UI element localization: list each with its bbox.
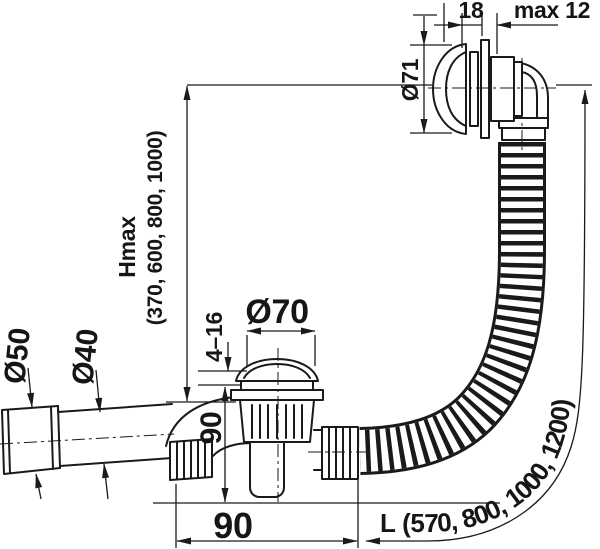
label-diameter-71: Ø71 bbox=[397, 58, 423, 101]
flange-upper bbox=[241, 381, 313, 390]
overflow-washer bbox=[481, 40, 489, 138]
d50-arrow-bottom bbox=[36, 474, 41, 499]
overflow-head bbox=[433, 40, 548, 140]
label-offset-90: 90 bbox=[213, 505, 252, 546]
label-hmax: Hmax bbox=[114, 216, 140, 278]
label-hmax-values: (370, 600, 800, 1000) bbox=[144, 131, 167, 326]
label-diameter-50: Ø50 bbox=[0, 327, 37, 386]
overflow-elbow-inner bbox=[522, 72, 537, 118]
overflow-cap-lens bbox=[433, 44, 466, 134]
dim-waste-height: 90 bbox=[195, 387, 228, 502]
label-wall-max-12: max 12 bbox=[514, 0, 590, 23]
overflow-body bbox=[491, 57, 514, 121]
technical-drawing-page: 18 max 12 Ø71 Hmax (370, 600, 800, 1000)… bbox=[0, 0, 600, 549]
strainer-slots bbox=[252, 405, 302, 438]
hose-drain-nut bbox=[322, 427, 358, 479]
technical-drawing-canvas: 18 max 12 Ø71 Hmax (370, 600, 800, 1000)… bbox=[0, 0, 600, 549]
outlet-tube bbox=[58, 404, 172, 468]
d40-arrow-bottom bbox=[104, 464, 108, 499]
overflow-plate bbox=[470, 52, 478, 126]
dim-plug-diameter: Ø70 bbox=[245, 293, 315, 366]
waste-drain-body bbox=[231, 359, 323, 497]
outlet-stub bbox=[314, 430, 322, 470]
label-height-90: 90 bbox=[195, 412, 228, 445]
trap-cup bbox=[250, 442, 284, 497]
corrugated-hose bbox=[322, 142, 522, 479]
label-grip-18: 18 bbox=[459, 0, 484, 23]
label-clamp-range: 4–16 bbox=[201, 312, 227, 362]
label-diameter-40: Ø40 bbox=[66, 328, 105, 387]
label-diameter-70: Ø70 bbox=[245, 293, 308, 331]
hose-top-connector-band bbox=[502, 128, 545, 140]
dim-height-hmax: Hmax (370, 600, 800, 1000) bbox=[114, 86, 187, 401]
dim-hose-length: L (570, 800, 1000, 1200) bbox=[366, 90, 585, 541]
plug-dome-cap bbox=[236, 359, 318, 381]
outlet-pipe bbox=[2, 404, 172, 474]
overflow-body-step bbox=[514, 62, 522, 116]
flange-lower bbox=[231, 390, 323, 400]
